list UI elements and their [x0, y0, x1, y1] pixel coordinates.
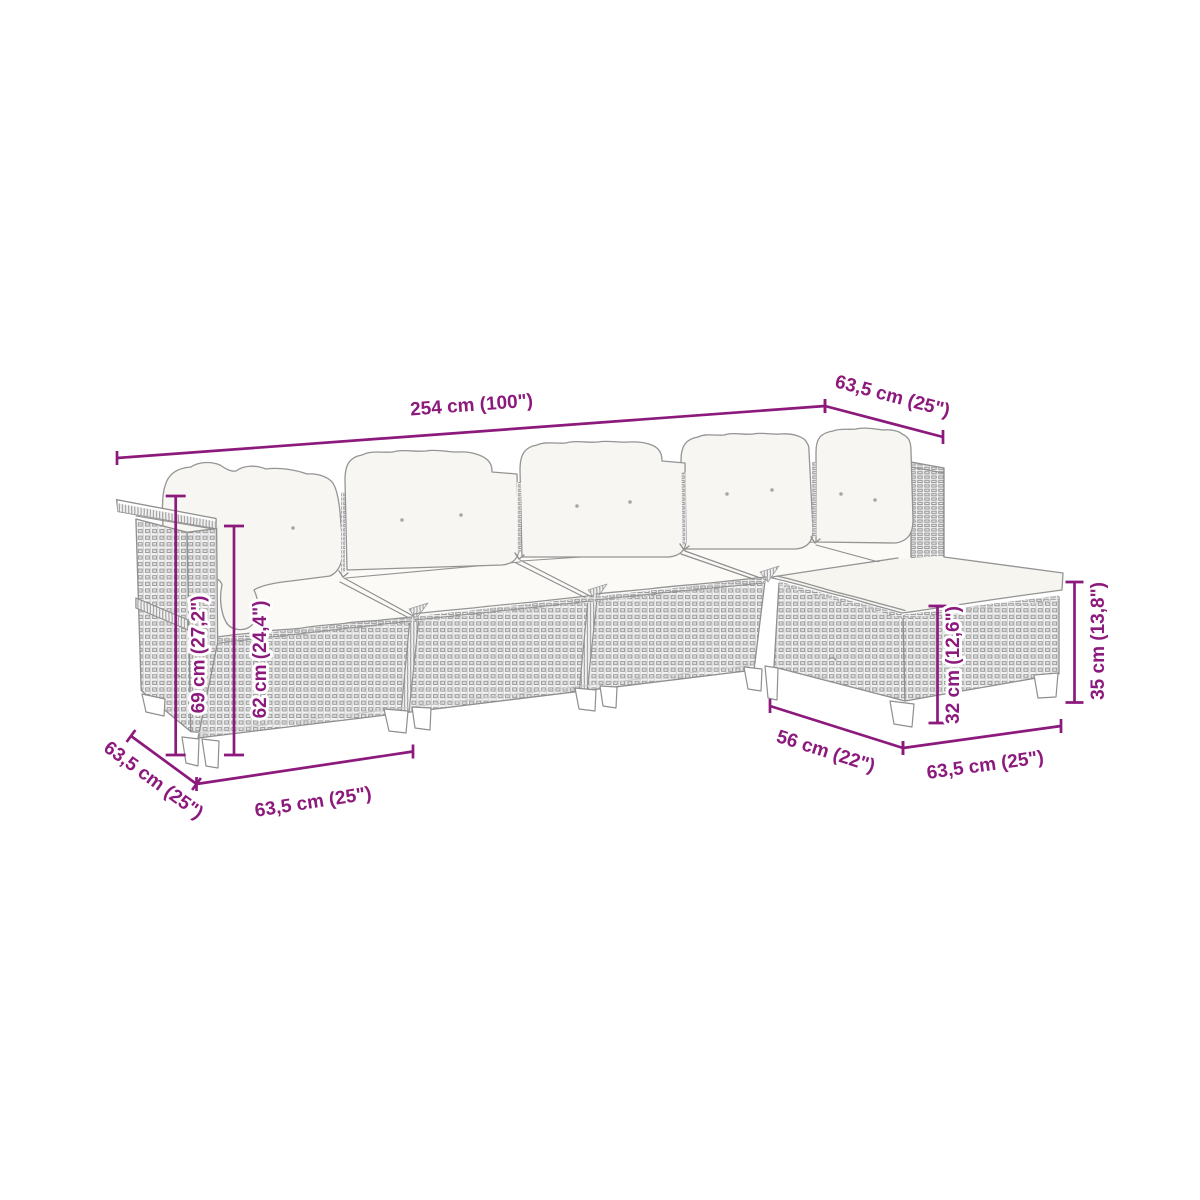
- svg-text:69 cm (27,2"): 69 cm (27,2"): [189, 596, 210, 714]
- svg-text:35 cm (13,8"): 35 cm (13,8"): [1088, 582, 1109, 700]
- svg-text:32 cm (12,6"): 32 cm (12,6"): [943, 606, 964, 724]
- svg-text:62 cm (24,4"): 62 cm (24,4"): [250, 601, 271, 719]
